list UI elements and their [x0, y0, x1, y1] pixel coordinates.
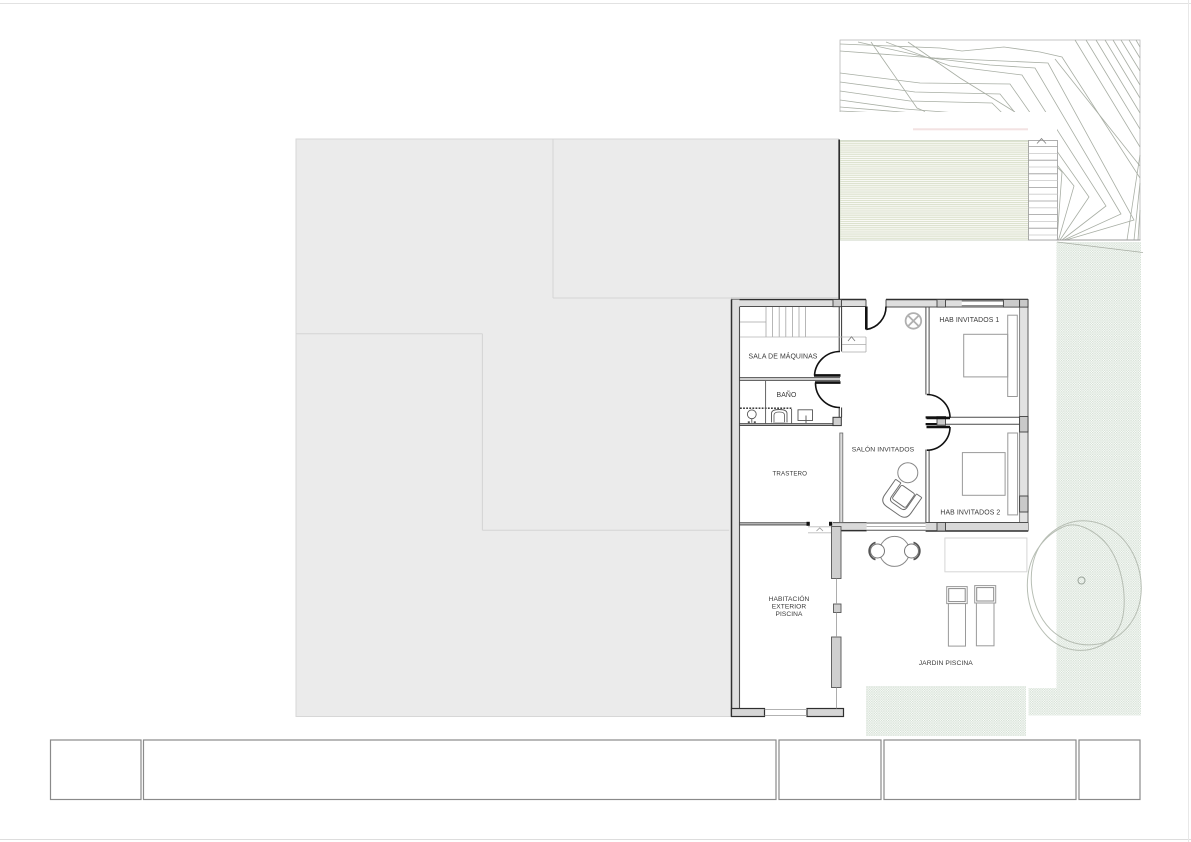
svg-text:PISCINA: PISCINA: [775, 611, 803, 618]
svg-text:HABITACIÓN: HABITACIÓN: [769, 594, 810, 603]
svg-text:HAB INVITADOS 2: HAB INVITADOS 2: [940, 509, 1000, 516]
svg-text:EXTERIOR: EXTERIOR: [772, 603, 807, 610]
svg-text:SALÓN INVITADOS: SALÓN INVITADOS: [852, 444, 915, 453]
svg-text:JARDIN PISCINA: JARDIN PISCINA: [919, 660, 974, 667]
svg-text:TRASTERO: TRASTERO: [773, 471, 808, 478]
svg-text:SALA DE MÁQUINAS: SALA DE MÁQUINAS: [749, 352, 818, 361]
svg-text:HAB INVITADOS 1: HAB INVITADOS 1: [939, 317, 999, 324]
svg-text:BAÑO: BAÑO: [777, 390, 797, 399]
